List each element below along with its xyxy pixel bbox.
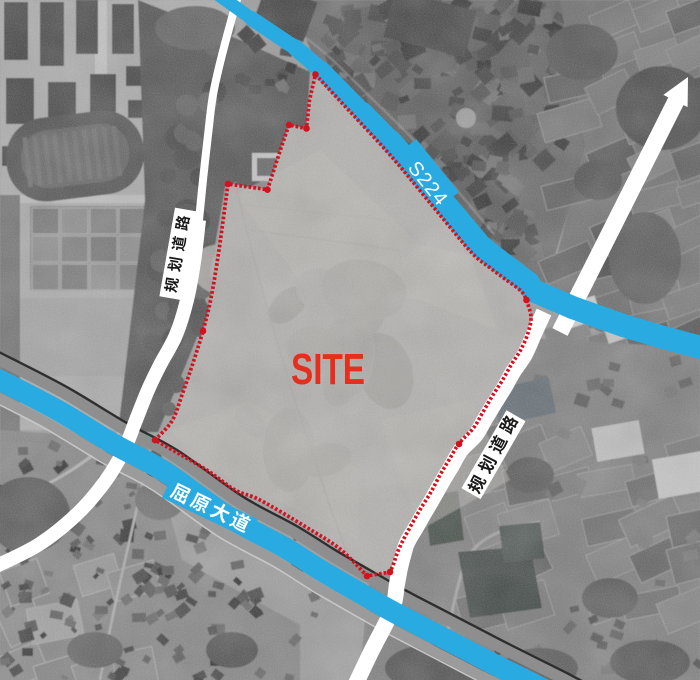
svg-text:SITE: SITE bbox=[291, 345, 365, 394]
